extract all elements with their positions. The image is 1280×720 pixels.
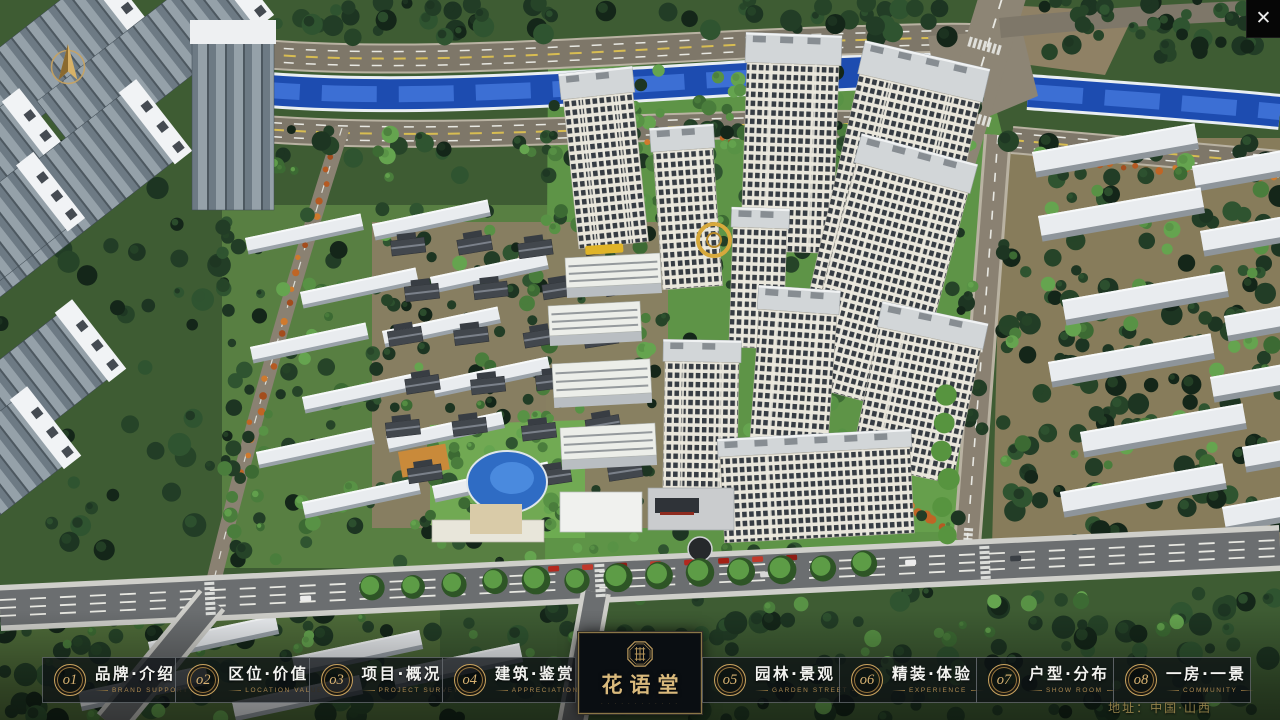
project-address: 地址：中国·山西 bbox=[1108, 699, 1212, 716]
menu-sublabel: LOCATION VALUE bbox=[228, 687, 308, 694]
menu-label: 园林·景观 bbox=[755, 666, 839, 684]
menu-label: 建筑·鉴赏 bbox=[495, 666, 575, 684]
menu-sublabel: APPRECIATION bbox=[495, 687, 575, 694]
north-compass-icon bbox=[46, 38, 90, 92]
menu-sublabel: EXPERIENCE bbox=[892, 687, 976, 694]
menu-number-badge: o6 bbox=[851, 664, 883, 696]
seal-icon bbox=[627, 641, 653, 667]
menu-item-brand-intro[interactable]: o1 品牌·介绍 BRAND SUPPORT bbox=[42, 657, 176, 703]
menu-number-badge: o3 bbox=[321, 664, 353, 696]
menu-item-interior-experience[interactable]: o6 精装·体验 EXPERIENCE bbox=[839, 657, 977, 703]
menu-sublabel: PROJECT SURVEY bbox=[362, 687, 442, 694]
menu-label: 品牌·介绍 bbox=[95, 666, 175, 684]
menu-number-badge: o7 bbox=[988, 664, 1020, 696]
menu-sublabel: BRAND SUPPORT bbox=[95, 687, 175, 694]
menu-number-badge: o2 bbox=[187, 664, 219, 696]
menu-number-badge: o8 bbox=[1125, 664, 1157, 696]
project-name: 花语堂 bbox=[602, 669, 686, 699]
menu-item-landscape-garden[interactable]: o5 园林·景观 GARDEN STREET bbox=[702, 657, 840, 703]
menu-item-architecture-appreciation[interactable]: o4 建筑·鉴赏 APPRECIATION bbox=[442, 657, 576, 703]
bottom-menu-right: o5 园林·景观 GARDEN STREET o6 精装·体验 EXPERIEN… bbox=[702, 657, 1251, 703]
menu-label: 一房·一景 bbox=[1166, 666, 1250, 684]
close-button[interactable]: ✕ bbox=[1246, 0, 1280, 38]
menu-sublabel: GARDEN STREET bbox=[755, 687, 839, 694]
aerial-site-plan-render bbox=[0, 0, 1280, 720]
menu-label: 区位·价值 bbox=[228, 666, 308, 684]
menu-label: 精装·体验 bbox=[892, 666, 976, 684]
menu-item-project-overview[interactable]: o3 项目·概况 PROJECT SURVEY bbox=[309, 657, 443, 703]
presentation-window: ✕ o1 品牌·介绍 BRAND SUPPORT o2 区位·价值 LOCATI… bbox=[0, 0, 1280, 720]
close-icon: ✕ bbox=[1256, 9, 1272, 28]
menu-label: 项目·概况 bbox=[362, 666, 442, 684]
menu-label: 户型·分布 bbox=[1029, 666, 1113, 684]
menu-sublabel: COMMUNITY bbox=[1166, 687, 1250, 694]
menu-item-location-value[interactable]: o2 区位·价值 LOCATION VALUE bbox=[175, 657, 309, 703]
menu-number-badge: o1 bbox=[54, 664, 86, 696]
project-name-latin: · · · · · · · · · · · · bbox=[601, 701, 679, 706]
project-logo-plaque[interactable]: 花语堂 · · · · · · · · · · · · bbox=[578, 632, 702, 714]
bottom-menu-left: o1 品牌·介绍 BRAND SUPPORT o2 区位·价值 LOCATION… bbox=[42, 657, 576, 703]
menu-number-badge: o5 bbox=[714, 664, 746, 696]
menu-number-badge: o4 bbox=[454, 664, 486, 696]
menu-item-one-room-one-view[interactable]: o8 一房·一景 COMMUNITY bbox=[1113, 657, 1251, 703]
menu-sublabel: SHOW ROOM bbox=[1029, 687, 1113, 694]
menu-item-floorplan-distribution[interactable]: o7 户型·分布 SHOW ROOM bbox=[976, 657, 1114, 703]
